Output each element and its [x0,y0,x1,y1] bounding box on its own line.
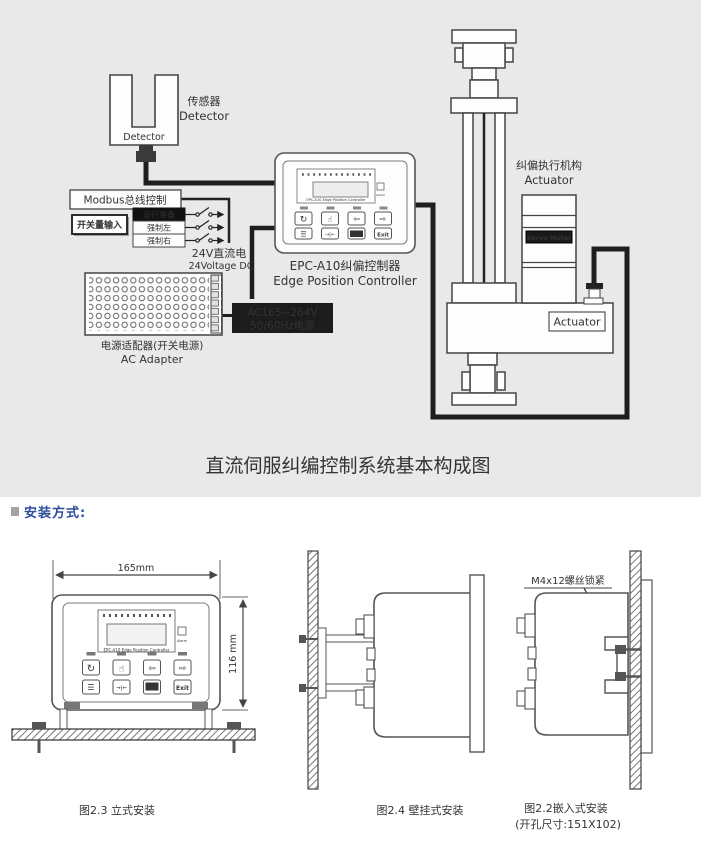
connector-flange [364,615,374,638]
switch-row-label: 运行准备 [143,210,175,220]
dc24-label-en: 24Voltage DC [189,261,254,272]
sensor-label-en: Detector [179,109,229,123]
servo-motor: Servo Motor [522,195,576,303]
lcd-display [107,624,166,645]
auto-icon: ↻ [300,215,308,225]
lcd-display [313,182,368,197]
menu-icon: ☰ [87,683,94,692]
fig-embedded-hole-size: (开孔尺寸:151X102) [515,817,621,831]
connector-flange [364,687,374,708]
menu-icon: ☰ [300,231,306,239]
wall [308,551,318,789]
connector-knob [367,648,375,660]
mount-tab [64,702,80,709]
rail-bolt-head [227,722,241,729]
panel-title: EPC-A10 Edge Position Controller [103,648,169,653]
actuator-tag-label: Actuator [554,316,601,329]
header-square-icon [11,507,19,516]
ac-power-line2: 50/60Hz电源 [250,319,315,332]
installation-diagrams: 165mm 116 mm EPC-A10 Edge Position Contr… [0,523,701,856]
switch-row-label: 强制左 [147,223,171,233]
arrow-right-icon: ⇨ [380,215,387,224]
controller-panel: EPC-A10 Edge Position Controller Alarm ↻… [273,153,417,288]
rear-connectors [517,614,536,709]
manual-hand-icon: ☝ [328,215,333,224]
servo-motor-label: Servo Motor [527,234,573,242]
controller-label-en: Edge Position Controller [273,274,417,288]
section-header-title: 安装方式: [24,502,86,521]
panel-title: EPC-A10 Edge Position Controller [306,198,366,202]
fig-wall-mount: 图2.4 壁挂式安装 [299,551,484,817]
guide-column-left [463,113,473,283]
mount-tab [192,702,208,709]
auto-icon: ↻ [87,664,95,675]
actuator-label-en: Actuator [524,173,573,187]
alarm-label: Alarm [177,639,188,643]
ac-power-box: AC165~264V 50/60Hz电源 [232,303,333,333]
connector-plug [517,618,525,633]
connector-plug [356,690,364,705]
switch-rows: 运行准备 强制左 强制右 [133,208,223,248]
switch-row-label: 强制右 [147,236,171,246]
front-bezel [641,580,652,753]
fig-wall-caption: 图2.4 壁挂式安装 [377,803,464,817]
exit-label: Exit [377,233,389,239]
diagram-caption: 直流伺服纠编控制系统基本构成图 [205,455,490,477]
setup-label: Setup [352,233,362,237]
connector-flange [525,614,535,637]
detector-connector [139,145,153,151]
clamp-screw-head [615,645,626,654]
adapter-perforations [89,277,209,331]
setup-label: Setup [146,685,158,690]
actuator-label-cn: 纠偏执行机构 [516,158,582,172]
screw-callout-label: M4x12螺丝锁紧 [531,574,605,587]
arrow-left-icon: ⇦ [353,215,360,224]
installation-section: 165mm 116 mm EPC-A10 Edge Position Contr… [0,523,701,856]
clamp-screw-head [615,672,626,681]
rear-connectors [356,615,375,708]
adapter-label-cn: 电源适配器(开关电源) [101,339,204,352]
actuator-tag: Actuator [549,312,605,331]
switch-input-title: 开关量输入 [77,219,122,231]
arrow-left-icon: ⇦ [148,664,156,674]
connector-knob [528,647,536,659]
modbus-box: Modbus总线控制 [70,190,181,209]
manual-page: Detector 传感器 Detector Modbus总线控制 开关量输入 [0,0,701,856]
switch-symbols [185,208,223,243]
detector-device-label: Detector [123,132,164,143]
controller-body-side [535,593,628,735]
controller-label-cn: EPC-A10纠偏控制器 [290,258,401,273]
rail-bolt-head [32,722,46,729]
front-bezel [470,575,484,752]
arrow-right-icon: ⇨ [179,664,187,674]
connector-flange [525,688,535,709]
exit-label: Exit [176,685,189,692]
modbus-label: Modbus总线控制 [84,194,167,207]
fig-vertical-caption: 图2.3 立式安装 [79,803,155,817]
dc24-labels: 24V直流电 24Voltage DC [189,246,254,272]
guide-column-right [495,113,505,283]
detector-cable [146,161,290,183]
fig-embedded-caption: 图2.2嵌入式安装 [524,801,608,815]
connector-plug [517,691,525,706]
fig-vertical-mount: 165mm 116 mm EPC-A10 Edge Position Contr… [12,560,255,817]
stand-leg [60,709,67,729]
width-dimension-label: 165mm [118,563,155,574]
detector-connector-base [136,151,156,162]
center-icon: →|← [116,686,127,692]
section-header: 安装方式: [0,498,701,524]
switch-input-box: 开关量输入 [72,215,129,236]
mount-rail [12,729,255,740]
ac-power-line1: AC165~264V [247,307,318,319]
connector-knob [528,668,536,680]
actuator-plug [584,283,603,304]
panel-wall [630,551,641,789]
dc24-label-cn: 24V直流电 [192,246,247,260]
center-icon: →|← [325,232,335,238]
controller-body-side [374,593,473,737]
system-diagram: Detector 传感器 Detector Modbus总线控制 开关量输入 [0,0,701,497]
connector-plug [356,619,364,634]
fig-embedded-mount: M4x12螺丝锁紧 图2.2嵌入式安 [515,551,652,831]
sensor-label-cn: 传感器 [188,95,221,108]
connector-knob [367,669,375,681]
alarm-label: Alarm [376,193,385,197]
height-dimension-label: 116 mm [228,634,239,674]
stand-leg [205,709,212,729]
power-adapter: 电源适配器(开关电源) AC Adapter [85,273,234,366]
wall-bolt [299,684,306,692]
adapter-label-en: AC Adapter [121,353,184,366]
adapter-terminal-strip [211,275,222,333]
wall-bolt [299,635,306,643]
system-diagram-section: Detector 传感器 Detector Modbus总线控制 开关量输入 [0,0,701,497]
bracket-plate [318,628,326,698]
manual-hand-icon: ☝ [119,665,124,675]
detector-unit: Detector 传感器 Detector [110,75,229,162]
